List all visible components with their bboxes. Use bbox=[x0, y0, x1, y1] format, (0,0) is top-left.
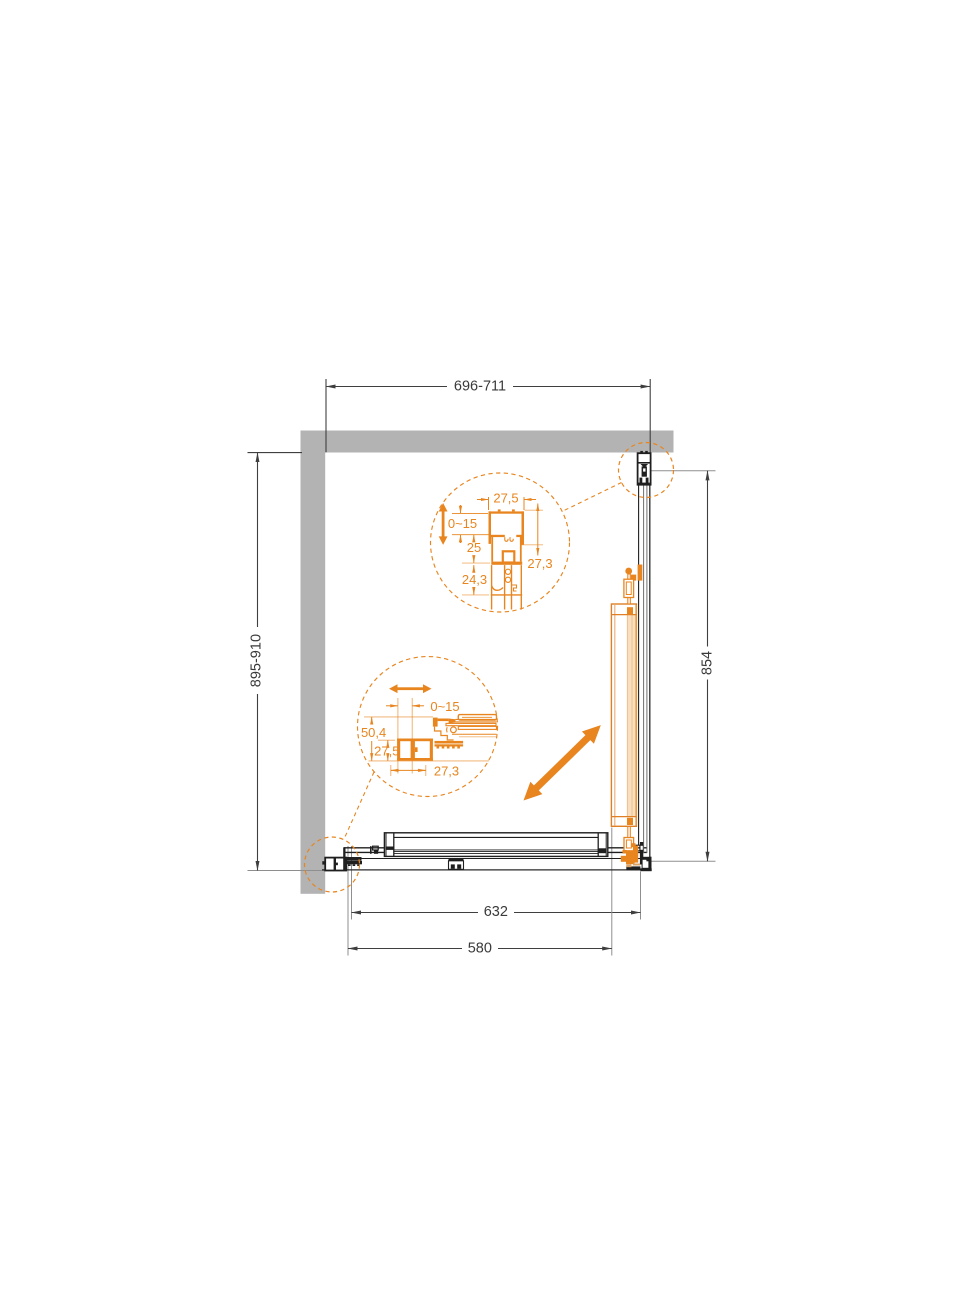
svg-text:50,4: 50,4 bbox=[361, 725, 386, 740]
svg-text:27,5: 27,5 bbox=[374, 744, 399, 759]
svg-text:25: 25 bbox=[467, 540, 481, 555]
svg-text:895-910: 895-910 bbox=[249, 634, 265, 687]
svg-text:696-711: 696-711 bbox=[454, 379, 506, 395]
svg-text:632: 632 bbox=[484, 904, 508, 920]
svg-text:0~15: 0~15 bbox=[430, 699, 459, 714]
svg-text:0~15: 0~15 bbox=[448, 516, 477, 531]
svg-text:854: 854 bbox=[700, 651, 716, 675]
svg-text:27,3: 27,3 bbox=[527, 556, 552, 571]
svg-text:27,3: 27,3 bbox=[434, 764, 459, 779]
svg-text:24,3: 24,3 bbox=[462, 572, 487, 587]
svg-text:27,5: 27,5 bbox=[493, 490, 518, 505]
svg-text:580: 580 bbox=[468, 940, 492, 956]
